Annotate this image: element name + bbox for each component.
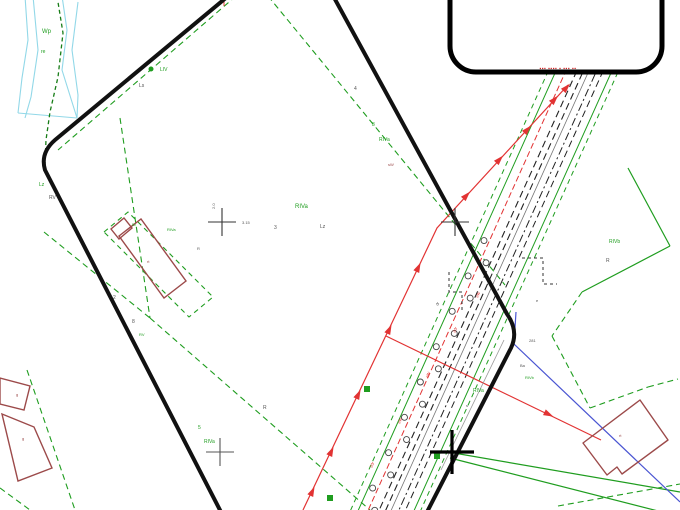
legend-box-caption: ▪▪▪ ▪▪▪▪ ▪ ▪▪▪ ▪▪ [539,66,576,72]
tree-row-circle [417,379,423,385]
tree-row-circle [449,308,455,314]
map-label: RIVa [167,227,176,232]
map-label: RIVa [379,137,390,143]
tree-symbol [364,386,370,392]
map-label: e [536,298,539,303]
map-label: 2.0 [211,203,216,209]
building-outlines [0,218,668,481]
map-label: RIVb [609,239,620,245]
map-label: Ba [520,363,526,368]
survey-crosses [206,208,474,474]
map-label: Lz [39,182,45,188]
arrow-head [307,487,314,497]
arrow-head [543,409,553,416]
building-outline [2,414,52,481]
corridor-step-details [449,258,557,310]
map-label: 281 [529,338,536,343]
map-label: g [22,436,24,441]
map-label: R [606,258,610,264]
tree-symbol [149,67,154,72]
map-label: g [16,392,18,397]
map-label: 5 [198,425,201,431]
map-label: RV [139,332,145,337]
tree-row-circle [433,344,439,350]
map-label: RIVa [295,204,309,210]
map-label: re [41,49,46,55]
map-label: Ls [139,83,145,89]
map-label: dr [434,301,440,307]
map-label: LIV [160,67,168,73]
water-stream [18,0,78,163]
tree-row-circle [419,401,425,407]
map-label: 3.15 [242,220,251,225]
map-label: R [197,246,200,251]
map-label: RIVb [525,375,535,380]
building-outline [0,378,30,410]
map-label: Br [132,222,137,227]
tree-row-circle [386,450,392,456]
tree-row-circle [465,273,471,279]
arrow-head [413,263,420,273]
map-label: 8 [132,319,135,325]
cadastral-map: WpreLIVLsLzRV43RIVasWRIVa3LzBrRIVaRrt28R… [0,0,680,510]
map-label: RIVa [473,388,484,394]
map-label: 2dr [368,460,375,468]
map-label: 4 [354,86,357,92]
map-label: s [466,403,468,408]
map-label: 3 [372,122,375,128]
tree-row-circle [404,437,410,443]
tree-row-circle [388,472,394,478]
tree-row-circle [435,366,441,372]
map-label: sW [388,162,394,167]
tree-row-circle [370,485,376,491]
legend-box: ▪▪▪ ▪▪▪▪ ▪ ▪▪▪ ▪▪ [450,0,662,72]
tree-row-circle [481,238,487,244]
map-label: rt [619,433,622,438]
map-label: Lz [320,224,326,230]
map-label: rt [147,259,150,264]
map-label: Wp [42,29,52,35]
map-label: 3 [274,225,277,231]
tree-symbol [327,495,333,501]
arrow-head [384,325,391,335]
tree-symbol [434,453,440,459]
power-line-red [224,0,601,510]
cable-line-blue [514,312,680,502]
arrow-head [353,390,360,400]
map-label: eW [424,371,431,379]
cadastral-map-canvas[interactable]: WpreLIVLsLzRV43RIVasWRIVa3LzBrRIVaRrt28R… [0,0,680,510]
tree-row-circle [467,295,473,301]
utility-corridor [341,0,666,510]
map-label: eW [474,291,481,299]
map-label: 2 [113,295,116,301]
main-parcel-outline [44,0,514,510]
legend-box-frame [450,0,662,72]
map-label: R [263,405,267,411]
map-label: RIVa [204,439,215,445]
tree-row-circle [483,260,489,266]
map-label: RV [49,195,57,201]
arrow-head [326,447,333,457]
